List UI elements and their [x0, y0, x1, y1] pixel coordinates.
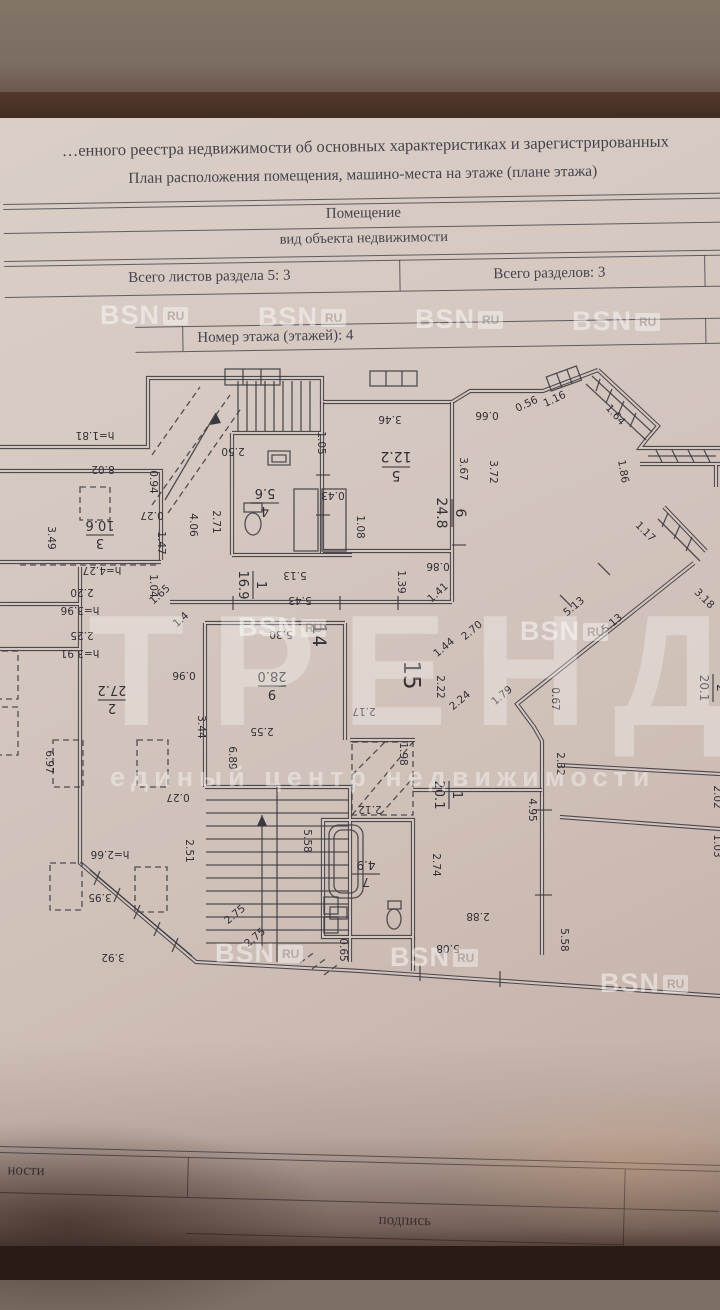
svg-text:1: 1	[449, 791, 464, 799]
stair-treads-upper	[238, 381, 310, 431]
room-label: 227.2	[98, 682, 127, 715]
dimension-label: 1.04	[147, 574, 159, 598]
dimension-label: 5.13	[283, 569, 306, 581]
dimension-label: 2.50	[221, 445, 244, 457]
svg-text:9: 9	[268, 686, 276, 701]
dimension-label: 1.17	[633, 519, 658, 544]
corridor-label: 15	[398, 660, 424, 689]
dimension-label: 2.71	[210, 510, 222, 533]
room-label: 74.9	[352, 858, 380, 889]
room-label: 116.9	[235, 571, 268, 600]
dimension-label: 0.27	[166, 791, 189, 803]
dimension-label: 1.47	[155, 531, 167, 554]
dimension-label: 0.67	[549, 687, 561, 710]
svg-text:1: 1	[253, 581, 268, 589]
dimension-label: 1.03	[711, 834, 720, 857]
svg-text:4: 4	[261, 503, 269, 518]
dimension-label: 5.13	[561, 595, 587, 619]
dimension-label: 4.06	[187, 513, 199, 537]
dimension-label: 5.08	[436, 942, 459, 954]
svg-text:7: 7	[362, 875, 370, 889]
dimension-label: 2.75	[222, 903, 248, 927]
sink-icon	[268, 451, 290, 465]
svg-text:27.2: 27.2	[98, 682, 127, 697]
dimension-label: 1.98	[397, 742, 409, 765]
dimension-label: 6.89	[226, 746, 238, 769]
dimension-label: 2.20	[70, 586, 93, 598]
dimension-label: 3.95	[88, 891, 111, 903]
dimension-label: h=2.66	[90, 848, 129, 860]
dimension-label: 3.67	[457, 457, 469, 480]
dimension-label: 2.02	[711, 785, 720, 808]
dimension-label: 2.12	[358, 803, 381, 815]
dimension-label: 0.43	[321, 489, 344, 501]
svg-text:10.6: 10.6	[86, 517, 115, 532]
dimension-label: 1.4	[171, 610, 192, 630]
svg-text:20.1: 20.1	[697, 675, 711, 702]
dimension-label: 0.65	[337, 938, 349, 961]
dimension-label: 2.75	[242, 926, 268, 950]
dimension-label: 4.95	[526, 798, 538, 821]
room-label: 120.1	[431, 781, 464, 810]
dimension-label: 0.66	[475, 409, 499, 421]
dimension-label: 8.02	[91, 463, 114, 475]
svg-text:5: 5	[392, 467, 401, 483]
dimension-label: 3.46	[378, 413, 402, 425]
photo-background-top	[0, 0, 720, 92]
room-label: 512.2	[380, 448, 411, 483]
dimension-label: 3.49	[45, 526, 57, 549]
svg-text:2: 2	[108, 700, 116, 715]
dimension-label: 1.79	[489, 684, 515, 708]
svg-text:24.8: 24.8	[433, 497, 449, 528]
photo-background-bottom	[0, 1246, 720, 1280]
room-label: 928.0	[258, 668, 287, 701]
svg-text:6: 6	[452, 509, 468, 518]
dimension-label: 2.24	[447, 688, 473, 712]
svg-text:12.2: 12.2	[380, 448, 411, 464]
dimension-label: 6.97	[43, 750, 55, 773]
dimension-label: 1.08	[354, 515, 366, 538]
wc-toilet-icon	[387, 901, 401, 929]
dimension-label: 3.92	[101, 951, 124, 963]
corridor-label: 14	[308, 623, 330, 647]
svg-text:16.9: 16.9	[235, 571, 250, 600]
dimension-label: 2.22	[434, 675, 446, 698]
svg-text:3: 3	[96, 535, 104, 550]
room-label: 220.1	[697, 674, 720, 702]
floor-plan: 2.501.05h=1.818.023.460.660.561.161.643.…	[0, 355, 720, 1135]
dimension-label: 0.96	[172, 669, 196, 681]
dimension-label: 3.72	[487, 460, 499, 483]
dimension-label: 2.55	[250, 725, 273, 737]
dimension-label: 0.27	[140, 509, 163, 521]
dimension-label: 5.58	[301, 829, 313, 852]
dimension-label: 2.32	[554, 752, 566, 775]
dimension-label: 1.39	[395, 570, 407, 593]
dimension-label: 1.86	[615, 459, 631, 484]
dimension-label: h=4.27	[83, 564, 122, 576]
dimension-label: h=1.81	[76, 429, 115, 441]
dimension-label: 1.05	[315, 431, 327, 454]
dimension-label: 5.43	[288, 594, 311, 606]
dimension-label: 2.25	[70, 629, 93, 641]
dimension-label: 0.86	[426, 560, 450, 572]
room-label: 310.6	[86, 517, 115, 550]
dimension-label: 2.74	[430, 853, 442, 877]
dimension-label: 3.44	[195, 715, 207, 739]
svg-text:28.0: 28.0	[258, 668, 287, 683]
toilet-icon	[244, 503, 262, 535]
svg-text:20.1: 20.1	[431, 781, 446, 810]
dimension-label: 2.88	[466, 910, 489, 922]
svg-text:5.6: 5.6	[255, 485, 276, 500]
dimension-label: 5.58	[558, 928, 570, 951]
dimension-label: 5.30	[269, 628, 292, 640]
dimension-label: 5.13	[599, 612, 625, 636]
dimension-label: 3.18	[692, 586, 717, 611]
svg-text:2: 2	[714, 684, 720, 692]
dimension-label: 2.17	[352, 705, 375, 717]
dimension-label: h=3.96	[60, 604, 99, 616]
dimension-label: 1.44	[431, 635, 457, 659]
svg-text:4.9: 4.9	[356, 858, 375, 872]
dimension-label: 2.51	[183, 839, 195, 862]
dimension-label: 0.56	[514, 394, 541, 415]
floor-number: Номер этажа (этажей): 4	[197, 327, 353, 346]
dimension-label: 2.70	[459, 619, 485, 643]
dimension-label: h=3.91	[61, 647, 100, 659]
dimension-label: 0.94	[147, 470, 159, 494]
